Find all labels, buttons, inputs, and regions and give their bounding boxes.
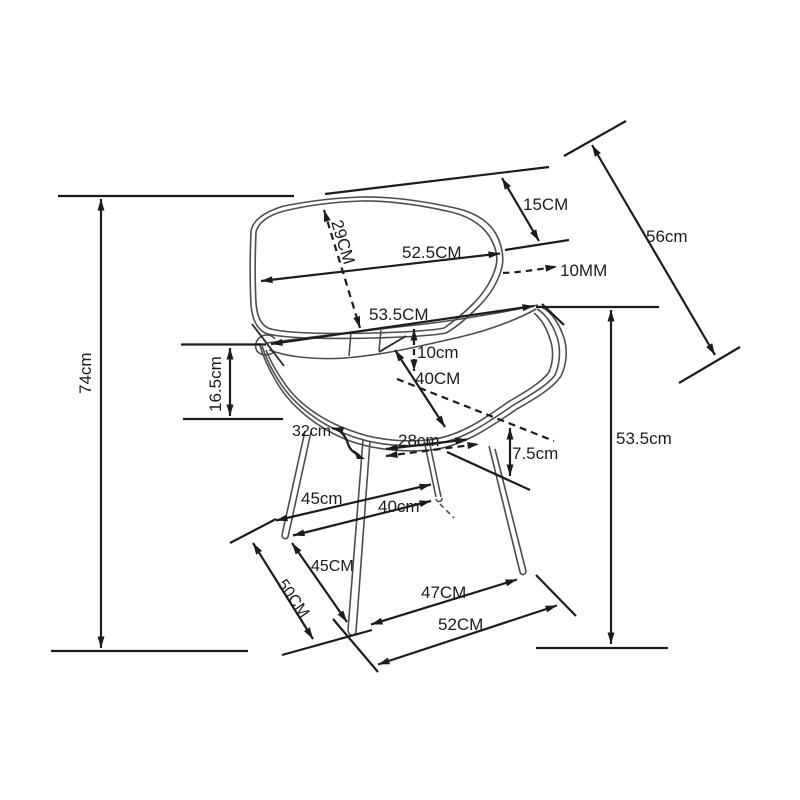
svg-text:53.5CM: 53.5CM: [369, 305, 429, 324]
svg-text:50CM: 50CM: [274, 577, 312, 622]
svg-text:28cm: 28cm: [398, 431, 440, 450]
svg-text:53.5cm: 53.5cm: [616, 429, 672, 448]
svg-text:52CM: 52CM: [438, 615, 483, 634]
svg-text:40CM: 40CM: [415, 369, 460, 388]
svg-text:74cm: 74cm: [76, 352, 95, 394]
svg-text:56cm: 56cm: [646, 227, 688, 246]
svg-text:29CM: 29CM: [327, 218, 358, 267]
svg-text:10MM: 10MM: [560, 261, 607, 280]
svg-text:15CM: 15CM: [523, 195, 568, 214]
svg-text:16.5cm: 16.5cm: [206, 356, 225, 412]
svg-text:10cm: 10cm: [417, 343, 459, 362]
svg-text:52.5CM: 52.5CM: [402, 243, 462, 262]
svg-text:47CM: 47CM: [421, 583, 466, 602]
svg-text:45cm: 45cm: [301, 489, 343, 508]
svg-text:40cm: 40cm: [378, 497, 420, 516]
svg-text:45CM: 45CM: [311, 558, 354, 575]
svg-text:32cm: 32cm: [292, 423, 331, 440]
svg-text:7.5cm: 7.5cm: [512, 444, 558, 463]
